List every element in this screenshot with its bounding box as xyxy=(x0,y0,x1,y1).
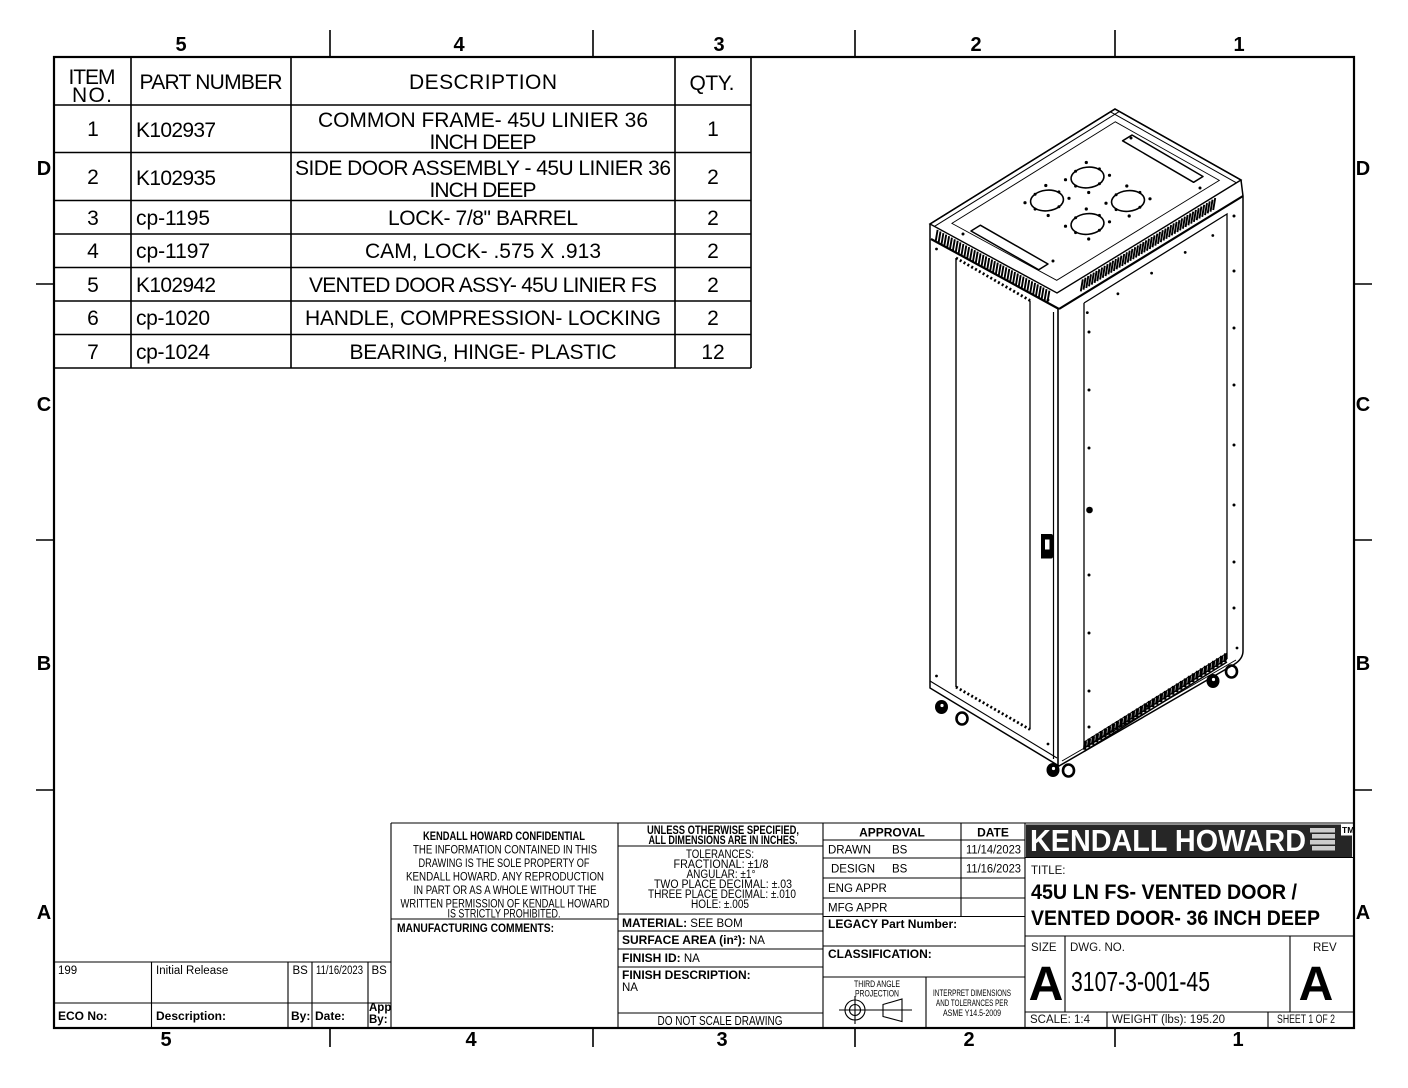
svg-text:5: 5 xyxy=(160,1029,171,1051)
svg-text:VENTED DOOR ASSY- 45U LINIER F: VENTED DOOR ASSY- 45U LINIER FS xyxy=(309,274,657,297)
svg-text:VENTED DOOR- 36 INCH DEEP: VENTED DOOR- 36 INCH DEEP xyxy=(1031,907,1320,930)
svg-text:MFG APPR: MFG APPR xyxy=(828,903,887,915)
svg-text:4: 4 xyxy=(465,1029,477,1051)
svg-text:3: 3 xyxy=(713,34,724,56)
svg-text:IN PART OR AS A WHOLE WITHOUT: IN PART OR AS A WHOLE WITHOUT THE xyxy=(414,885,597,897)
svg-text:Date:: Date: xyxy=(315,1009,345,1023)
svg-text:D: D xyxy=(1356,158,1370,180)
svg-text:3107-3-001-45: 3107-3-001-45 xyxy=(1071,966,1210,997)
svg-text:PROJECTION: PROJECTION xyxy=(855,989,899,999)
svg-text:THE INFORMATION CONTAINED IN T: THE INFORMATION CONTAINED IN THIS xyxy=(413,845,597,857)
svg-text:APPROVAL: APPROVAL xyxy=(859,826,925,840)
svg-text:MATERIAL: SEE BOM: MATERIAL: SEE BOM xyxy=(622,916,743,930)
svg-text:D: D xyxy=(37,158,51,180)
svg-text:2: 2 xyxy=(970,34,981,56)
svg-text:PART NUMBER: PART NUMBER xyxy=(140,71,283,94)
svg-text:A: A xyxy=(1356,902,1370,924)
svg-text:K102937: K102937 xyxy=(136,119,216,142)
svg-text:2: 2 xyxy=(707,274,719,297)
svg-text:HANDLE, COMPRESSION- LOCKING: HANDLE, COMPRESSION- LOCKING xyxy=(305,307,661,330)
svg-text:3: 3 xyxy=(716,1029,727,1051)
svg-text:1: 1 xyxy=(87,118,99,141)
svg-text:SIZE: SIZE xyxy=(1031,942,1057,954)
svg-text:BS: BS xyxy=(892,864,908,876)
svg-text:B: B xyxy=(1356,653,1370,675)
svg-text:ASME Y14.5-2009: ASME Y14.5-2009 xyxy=(943,1008,1001,1018)
svg-text:1: 1 xyxy=(707,118,719,141)
svg-text:SCALE: 1:4: SCALE: 1:4 xyxy=(1030,1014,1091,1026)
svg-text:BS: BS xyxy=(892,845,908,857)
svg-text:6: 6 xyxy=(87,307,99,330)
svg-text:ECO No:: ECO No: xyxy=(58,1009,107,1023)
svg-text:ENG APPR: ENG APPR xyxy=(828,883,887,895)
svg-text:By:: By: xyxy=(369,1014,388,1026)
svg-text:5: 5 xyxy=(175,34,186,56)
svg-text:KENDALL HOWARD: KENDALL HOWARD xyxy=(1030,823,1306,858)
svg-text:B: B xyxy=(37,653,51,675)
svg-text:SURFACE AREA (in²): NA: SURFACE AREA (in²): NA xyxy=(622,933,765,947)
svg-text:7: 7 xyxy=(87,341,99,364)
svg-text:Initial Release: Initial Release xyxy=(156,965,228,977)
svg-text:DO NOT SCALE DRAWING: DO NOT SCALE DRAWING xyxy=(658,1014,783,1028)
svg-text:5: 5 xyxy=(87,274,99,297)
svg-text:KENDALL HOWARD CONFIDENTIAL: KENDALL HOWARD CONFIDENTIAL xyxy=(423,829,585,843)
svg-text:Description:: Description: xyxy=(156,1009,226,1023)
svg-text:DRAWN: DRAWN xyxy=(828,845,871,857)
svg-text:TM: TM xyxy=(1342,825,1354,835)
svg-text:cp-1195: cp-1195 xyxy=(136,207,210,230)
svg-text:C: C xyxy=(1356,394,1370,416)
svg-text:REV: REV xyxy=(1313,942,1337,954)
svg-text:WEIGHT (lbs): 195.20: WEIGHT (lbs): 195.20 xyxy=(1112,1014,1225,1026)
svg-text:TITLE:: TITLE: xyxy=(1031,865,1066,877)
svg-text:FINISH DESCRIPTION:: FINISH DESCRIPTION: xyxy=(622,968,751,982)
svg-text:11/14/2023: 11/14/2023 xyxy=(966,845,1021,857)
svg-text:4: 4 xyxy=(453,34,465,56)
svg-text:C: C xyxy=(37,394,51,416)
svg-text:THIRD ANGLE: THIRD ANGLE xyxy=(854,979,900,989)
svg-text:SHEET 1 OF 2: SHEET 1 OF 2 xyxy=(1277,1014,1335,1026)
svg-text:45U LN FS- VENTED DOOR /: 45U LN FS- VENTED DOOR / xyxy=(1031,881,1297,904)
svg-text:DWG. NO.: DWG. NO. xyxy=(1070,942,1125,954)
svg-text:AND TOLERANCES PER: AND TOLERANCES PER xyxy=(936,998,1008,1008)
svg-text:cp-1024: cp-1024 xyxy=(136,341,210,364)
svg-text:COMMON FRAME- 45U LINIER 36: COMMON FRAME- 45U LINIER 36 xyxy=(318,109,648,132)
svg-text:INCH DEEP: INCH DEEP xyxy=(430,179,537,202)
svg-text:DESIGN: DESIGN xyxy=(831,864,875,876)
svg-text:A: A xyxy=(1299,958,1334,1011)
svg-text:DRAWING IS THE SOLE PROPERTY O: DRAWING IS THE SOLE PROPERTY OF xyxy=(419,858,590,870)
svg-text:K102942: K102942 xyxy=(136,274,216,297)
svg-text:1: 1 xyxy=(1233,34,1244,56)
svg-text:2: 2 xyxy=(707,307,719,330)
svg-text:2: 2 xyxy=(87,166,99,189)
svg-text:By:: By: xyxy=(291,1009,310,1023)
svg-text:INTERPRET DIMENSIONS: INTERPRET DIMENSIONS xyxy=(933,988,1011,998)
svg-text:BS: BS xyxy=(372,965,388,977)
svg-text:4: 4 xyxy=(87,240,99,263)
svg-text:BEARING, HINGE- PLASTIC: BEARING, HINGE- PLASTIC xyxy=(350,341,617,364)
svg-text:QTY.: QTY. xyxy=(690,72,735,95)
svg-text:CLASSIFICATION:: CLASSIFICATION: xyxy=(828,947,932,961)
svg-text:INCH DEEP: INCH DEEP xyxy=(430,131,537,154)
svg-text:KENDALL HOWARD. ANY REPRODUCT: KENDALL HOWARD. ANY REPRODUCTION xyxy=(406,872,604,884)
svg-text:IS STRICTLY PROHIBITED.: IS STRICTLY PROHIBITED. xyxy=(448,909,561,921)
svg-text:DATE: DATE xyxy=(977,826,1009,840)
svg-text:A: A xyxy=(37,902,51,924)
svg-text:K102935: K102935 xyxy=(136,167,216,190)
svg-text:HOLE: ±.005: HOLE: ±.005 xyxy=(691,899,749,911)
svg-text:cp-1020: cp-1020 xyxy=(136,307,210,330)
svg-text:NA: NA xyxy=(622,982,638,994)
svg-text:DESCRIPTION: DESCRIPTION xyxy=(409,71,557,94)
svg-text:199: 199 xyxy=(58,965,77,977)
svg-text:2: 2 xyxy=(707,166,719,189)
svg-text:11/16/2023: 11/16/2023 xyxy=(316,965,363,977)
svg-text:cp-1197: cp-1197 xyxy=(136,240,210,263)
svg-text:LEGACY Part Number:: LEGACY Part Number: xyxy=(828,917,957,931)
svg-text:A: A xyxy=(1029,958,1064,1011)
svg-text:12: 12 xyxy=(701,341,724,364)
svg-text:LOCK- 7/8" BARREL: LOCK- 7/8" BARREL xyxy=(388,207,578,230)
svg-text:11/16/2023: 11/16/2023 xyxy=(966,864,1021,876)
svg-text:NO.: NO. xyxy=(72,84,112,107)
svg-text:FINISH ID: NA: FINISH ID: NA xyxy=(622,951,700,965)
svg-text:SIDE DOOR ASSEMBLY - 45U LINIE: SIDE DOOR ASSEMBLY - 45U LINIER 36 xyxy=(295,157,671,180)
svg-text:App: App xyxy=(369,1002,391,1014)
svg-text:3: 3 xyxy=(87,207,99,230)
svg-text:1: 1 xyxy=(1232,1029,1243,1051)
svg-text:MANUFACTURING COMMENTS:: MANUFACTURING COMMENTS: xyxy=(397,921,554,935)
svg-text:2: 2 xyxy=(707,240,719,263)
svg-text:2: 2 xyxy=(963,1029,974,1051)
svg-text:2: 2 xyxy=(707,207,719,230)
svg-text:BS: BS xyxy=(293,965,309,977)
svg-text:ALL DIMENSIONS ARE IN INCHES.: ALL DIMENSIONS ARE IN INCHES. xyxy=(649,833,798,847)
svg-text:CAM, LOCK- .575 X .913: CAM, LOCK- .575 X .913 xyxy=(365,240,601,263)
